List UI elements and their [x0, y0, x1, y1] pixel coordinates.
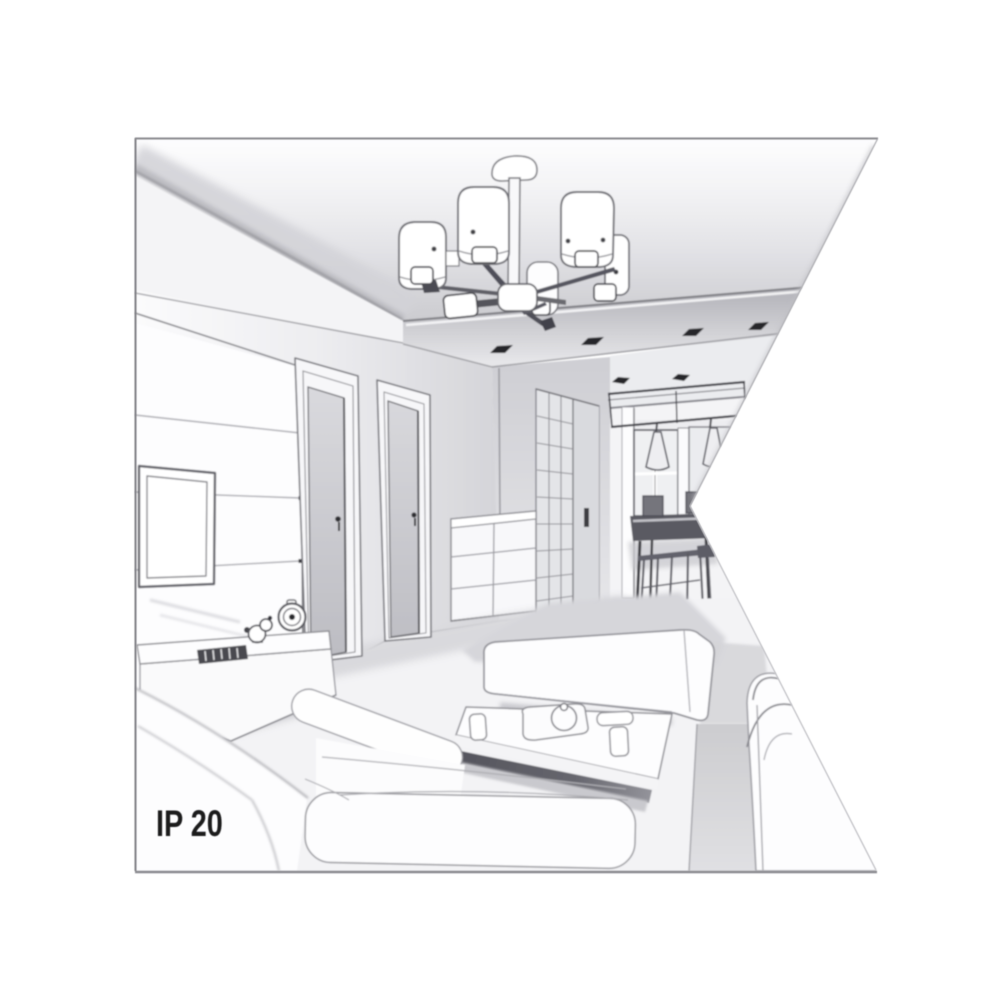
- svg-text:IP 20: IP 20: [156, 804, 223, 845]
